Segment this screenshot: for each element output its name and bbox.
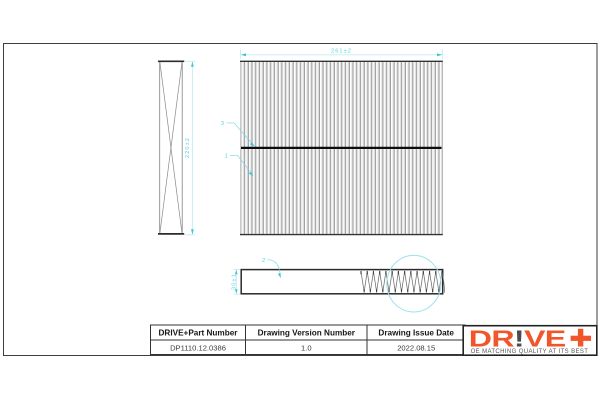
svg-text:1.0: 1.0 (301, 344, 312, 353)
svg-text:2022.08.15: 2022.08.15 (397, 344, 435, 353)
svg-text:Drawing Version Number: Drawing Version Number (258, 329, 356, 338)
svg-text:3: 3 (221, 121, 224, 127)
svg-text:220±2: 220±2 (185, 137, 191, 158)
svg-text:261±2: 261±2 (331, 49, 352, 55)
svg-text:Drawing Issue Date: Drawing Issue Date (378, 329, 454, 338)
svg-text:30±1: 30±1 (231, 273, 237, 290)
svg-text:DP1110.12.0386: DP1110.12.0386 (170, 344, 226, 353)
svg-text:1: 1 (225, 153, 228, 159)
svg-text:2: 2 (262, 258, 265, 264)
svg-text:DR!VE: DR!VE (469, 325, 566, 352)
svg-text:OE MATCHING QUALITY AT ITS BES: OE MATCHING QUALITY AT ITS BEST (471, 349, 589, 355)
svg-text:DRIVE+Part Number: DRIVE+Part Number (159, 329, 239, 338)
